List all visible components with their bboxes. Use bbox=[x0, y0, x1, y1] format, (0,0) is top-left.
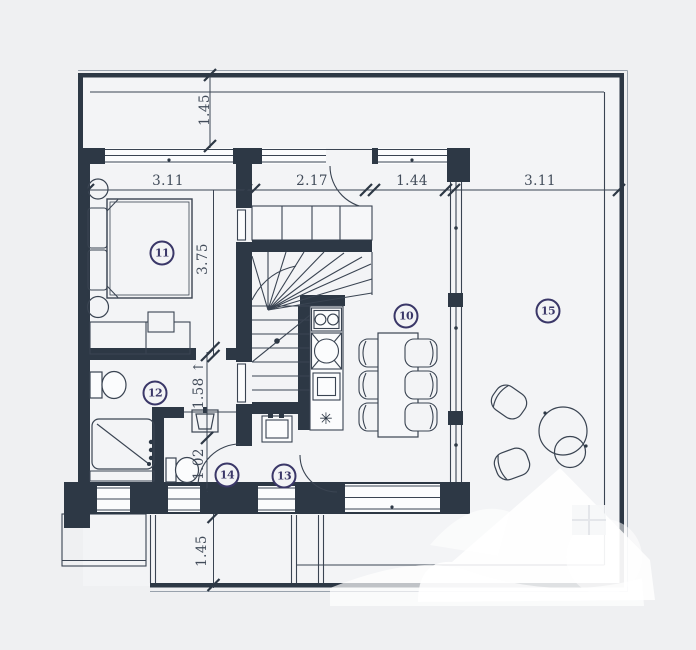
room-badge-bedroom: 11 bbox=[150, 241, 175, 266]
dim-label-375: 3.75 bbox=[195, 243, 211, 275]
room-badge-terrace: 15 bbox=[536, 299, 561, 324]
top-wall-windows bbox=[105, 148, 447, 164]
bathroom-door-leaf bbox=[238, 364, 246, 402]
dim-label-217: 2.17 bbox=[296, 173, 328, 189]
window bbox=[97, 486, 130, 512]
dim-label-144: 1.44 bbox=[396, 173, 428, 189]
toilet bbox=[90, 372, 126, 399]
dining-furniture bbox=[359, 333, 437, 437]
stair-direction-dot bbox=[274, 338, 280, 344]
room-badge-wc: 14 bbox=[215, 463, 240, 488]
room-badge-bathroom: 12 bbox=[143, 381, 168, 406]
window bbox=[168, 486, 200, 512]
window bbox=[262, 148, 326, 164]
dim-label-311-right: 3.11 bbox=[524, 173, 556, 189]
hall-sink-unit bbox=[262, 413, 292, 442]
dim-label-158: 1.58 ↑ bbox=[191, 361, 207, 409]
window bbox=[258, 486, 295, 512]
floor-plan-drawing: ✳ bbox=[0, 0, 696, 650]
balcony-door-opening bbox=[326, 148, 372, 164]
freezer-icon: ✳ bbox=[319, 409, 332, 428]
floor-plan-canvas: ✳ bbox=[0, 0, 696, 650]
dim-label-102: 1.02 bbox=[191, 448, 207, 480]
dim-label-145-top: 1.45 bbox=[197, 94, 213, 126]
bedroom-door-leaf bbox=[238, 210, 246, 240]
window bbox=[345, 484, 440, 512]
room-badge-hall: 13 bbox=[272, 464, 297, 489]
window bbox=[378, 148, 447, 164]
dim-label-145-bottom: 1.45 bbox=[194, 535, 210, 567]
room-badge-dining: 10 bbox=[394, 304, 419, 329]
dining-chairs-right bbox=[405, 339, 437, 431]
dim-label-311-left: 3.11 bbox=[152, 173, 184, 189]
window bbox=[105, 148, 233, 164]
